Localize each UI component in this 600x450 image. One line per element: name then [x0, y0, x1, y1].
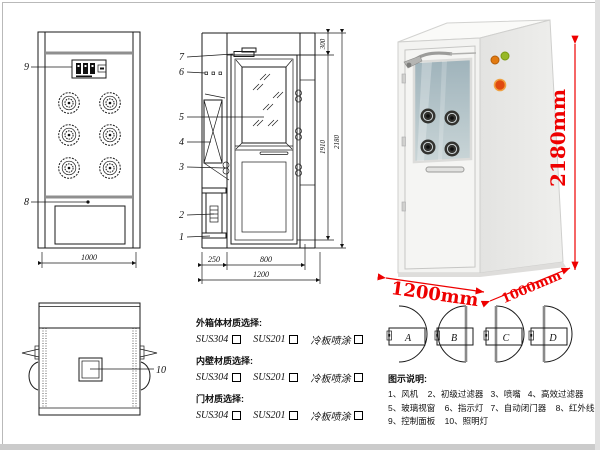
dim-250: 250: [208, 255, 220, 264]
nozzle-grid: [59, 93, 121, 179]
callout-6: 6: [179, 67, 184, 78]
legend-line-1: 1、风机 2、初级过滤器 3、喷嘴 4、高效过滤器: [388, 388, 593, 402]
dim-1200: 1200: [253, 270, 269, 279]
door-coldplate-checkbox[interactable]: [354, 411, 363, 420]
side-view-drawing: 7 6 5 4 3 2 1 300 1910 2180 2: [176, 22, 360, 294]
door-coldplate-label: 冷板喷涂: [310, 408, 350, 423]
dim-1910: 1910: [319, 140, 327, 155]
dim-300: 300: [319, 38, 327, 50]
top-view-drawing: 10: [18, 292, 178, 428]
door-sus201-checkbox[interactable]: [289, 411, 298, 420]
callout-10: 10: [156, 365, 166, 376]
door-sus304-label: SUS304: [196, 410, 228, 421]
product-photo: 2180mm 1200mm 1000mm: [372, 4, 596, 306]
indicator-orange: [491, 56, 499, 64]
hepa-filter: [204, 94, 229, 180]
control-panel: [72, 60, 106, 78]
callout-9: 9: [24, 62, 29, 73]
callout-8: 8: [24, 197, 29, 208]
door-sus201-label: SUS201: [253, 410, 285, 421]
door-option-c-label: C: [503, 333, 510, 344]
outer-sus304-label: SUS304: [196, 334, 228, 345]
right-border-strip: [595, 0, 600, 450]
hinge-bottom: [402, 202, 406, 211]
inner-coldplate-checkbox[interactable]: [354, 373, 363, 382]
callout-4: 4: [179, 137, 184, 148]
front-view-drawing: 9 8 1000: [16, 22, 178, 276]
outer-material-title: 外箱体材质选择:: [196, 316, 386, 329]
emergency-button: [495, 80, 506, 91]
inner-sus201-checkbox[interactable]: [289, 373, 298, 382]
dim-1000: 1000: [81, 253, 97, 262]
dim-2180: 2180: [333, 135, 341, 150]
legend-title: 图示说明:: [388, 372, 593, 385]
outer-sus201-checkbox[interactable]: [289, 335, 298, 344]
door-handle: [260, 152, 288, 154]
hinge-top: [402, 74, 406, 83]
outer-sus201-label: SUS201: [253, 334, 285, 345]
hinge-mid: [402, 137, 406, 146]
depth-dimensions: 250 800 1200: [202, 244, 320, 284]
door-side-view: [231, 48, 297, 244]
callout-7: 7: [179, 52, 185, 63]
inner-sus304-label: SUS304: [196, 372, 228, 383]
door-option-b[interactable]: B: [435, 300, 477, 368]
door-sus304-checkbox[interactable]: [232, 411, 241, 420]
dim-800: 800: [260, 255, 272, 264]
front-width-dimension: 1000: [42, 252, 136, 268]
inner-sus201-label: SUS201: [253, 372, 285, 383]
bottom-border-strip: [0, 444, 600, 450]
left-hinge-bracket: [22, 346, 39, 390]
inner-coldplate-label: 冷板喷涂: [310, 370, 350, 385]
air-grille: [55, 206, 125, 244]
height-dimensions: 300 1910 2180: [297, 33, 346, 248]
door-option-a[interactable]: A: [387, 300, 429, 368]
door-option-d[interactable]: D: [529, 300, 571, 368]
outer-coldplate-checkbox[interactable]: [354, 335, 363, 344]
indicator-green: [501, 52, 509, 60]
right-hinge-bracket: [140, 346, 157, 390]
door-option-c[interactable]: C: [484, 300, 526, 368]
legend-line-3: 9、控制面板 10、照明灯: [388, 415, 593, 429]
outer-sus304-checkbox[interactable]: [232, 335, 241, 344]
door-material-title: 门材质选择:: [196, 392, 386, 405]
outer-coldplate-label: 冷板喷涂: [310, 332, 350, 347]
photo-dim-height: 2180mm: [546, 89, 570, 187]
air-shower-spec-sheet: 9 8 1000: [0, 0, 600, 450]
callout-5: 5: [179, 112, 184, 123]
door-option-a-label: A: [404, 333, 412, 344]
inner-material-title: 内壁材质选择:: [196, 354, 386, 367]
photo-door-handle: [426, 167, 464, 172]
inner-sus304-checkbox[interactable]: [232, 373, 241, 382]
legend: 图示说明: 1、风机 2、初级过滤器 3、喷嘴 4、高效过滤器 5、玻璃视窗 6…: [388, 372, 593, 429]
door-option-b-label: B: [451, 333, 457, 344]
fan-unit: [202, 188, 226, 238]
ceiling-lamp: [79, 358, 102, 381]
callout-1: 1: [179, 232, 184, 243]
legend-line-2: 5、玻璃视窗 6、指示灯 7、自动闭门器 8、红外线感应器: [388, 402, 593, 416]
material-selection: 外箱体材质选择: SUS304 SUS201 冷板喷涂 内壁材质选择: SUS3…: [196, 316, 386, 430]
callout-2: 2: [179, 210, 184, 221]
callout-3: 3: [178, 162, 184, 173]
door-option-d-label: D: [548, 333, 557, 344]
door-swing-options: A B C D: [383, 298, 589, 370]
